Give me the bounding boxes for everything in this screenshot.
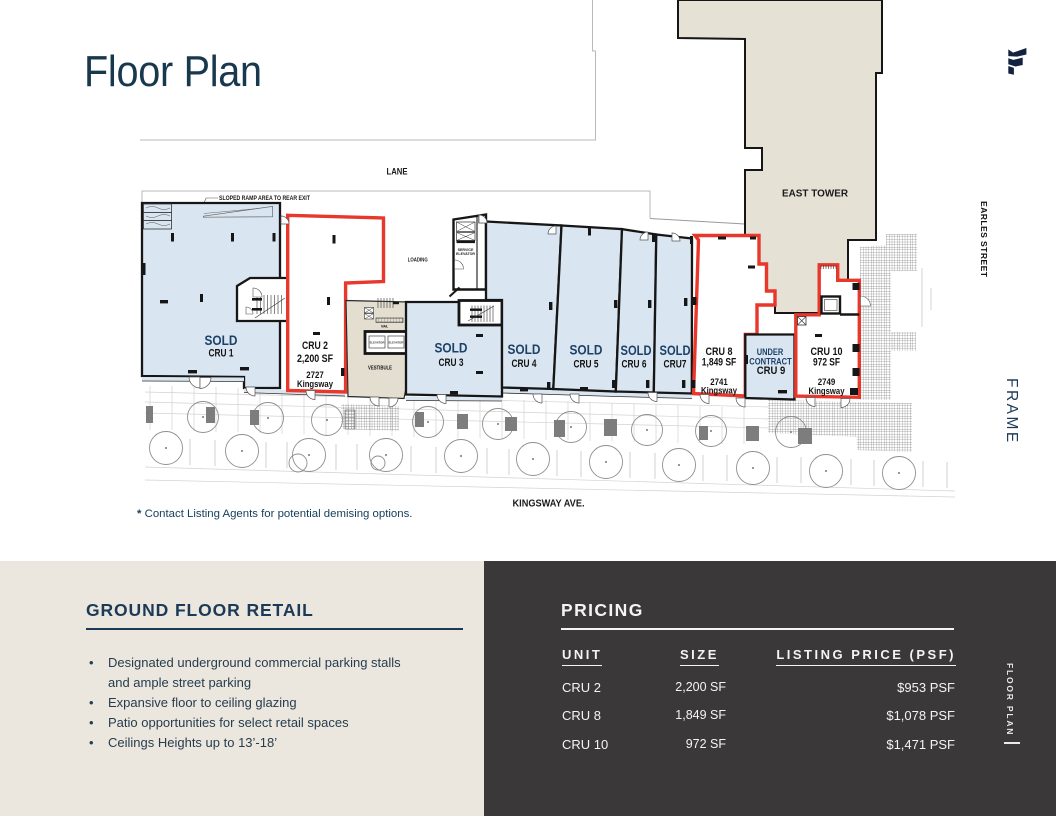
svg-text:CRU7: CRU7 <box>664 359 687 371</box>
svg-text:CRU 4: CRU 4 <box>512 358 538 370</box>
svg-text:VESTIBULE: VESTIBULE <box>368 366 393 372</box>
svg-text:Kingsway: Kingsway <box>297 379 334 390</box>
svg-text:Kingsway: Kingsway <box>809 386 846 397</box>
svg-text:ELEVATOR: ELEVATOR <box>389 341 404 345</box>
svg-text:1,849 SF: 1,849 SF <box>702 357 737 369</box>
svg-text:EAST TOWER: EAST TOWER <box>782 189 849 200</box>
svg-text:SOLD: SOLD <box>435 341 468 356</box>
svg-text:CRU 3: CRU 3 <box>439 357 464 369</box>
svg-text:CRU 9: CRU 9 <box>757 365 786 377</box>
svg-text:SOLD: SOLD <box>570 343 603 358</box>
svg-text:SOLD: SOLD <box>205 333 238 348</box>
svg-text:SOLD: SOLD <box>660 343 691 358</box>
svg-text:SOLD: SOLD <box>508 342 541 357</box>
svg-text:CRU 1: CRU 1 <box>209 348 234 360</box>
svg-text:ELEVATOR: ELEVATOR <box>456 252 475 256</box>
svg-text:SLOPED RAMP AREA TO REAR EXIT: SLOPED RAMP AREA TO REAR EXIT <box>219 195 310 202</box>
svg-text:2,200 SF: 2,200 SF <box>297 353 333 365</box>
svg-text:KINGSWAY AVE.: KINGSWAY AVE. <box>513 499 585 510</box>
svg-text:SOLD: SOLD <box>621 343 652 358</box>
svg-text:CRU 2: CRU 2 <box>302 340 328 352</box>
svg-text:CRU 6: CRU 6 <box>622 359 647 371</box>
svg-text:972 SF: 972 SF <box>813 357 840 369</box>
svg-text:LANE: LANE <box>387 167 408 177</box>
svg-text:CRU 5: CRU 5 <box>574 359 599 371</box>
svg-text:MAIL: MAIL <box>381 325 389 329</box>
svg-text:ELEVATOR: ELEVATOR <box>370 341 385 345</box>
svg-text:LOADING: LOADING <box>408 257 428 263</box>
